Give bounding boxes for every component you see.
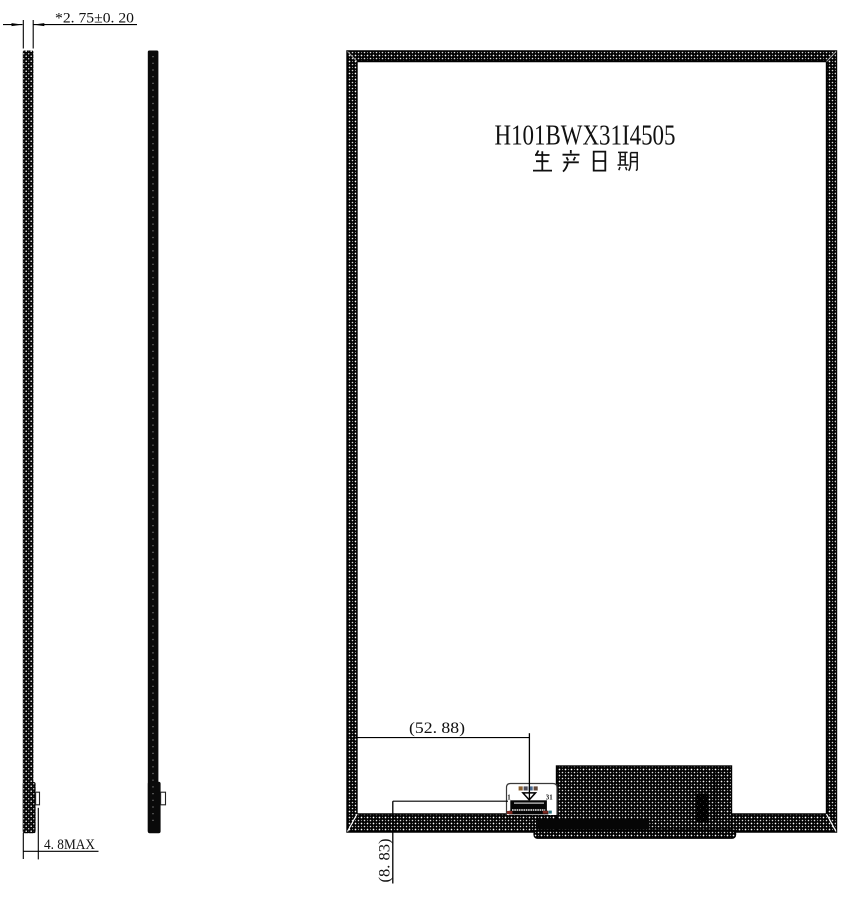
svg-text:31: 31 bbox=[546, 794, 553, 801]
svg-text:1: 1 bbox=[507, 794, 511, 801]
svg-text:4. 8MAX: 4. 8MAX bbox=[44, 837, 95, 853]
svg-text:H101BWX31I4505: H101BWX31I4505 bbox=[495, 121, 676, 152]
svg-text:(8. 83): (8. 83) bbox=[377, 839, 394, 883]
svg-text:(52. 88): (52. 88) bbox=[409, 720, 465, 737]
